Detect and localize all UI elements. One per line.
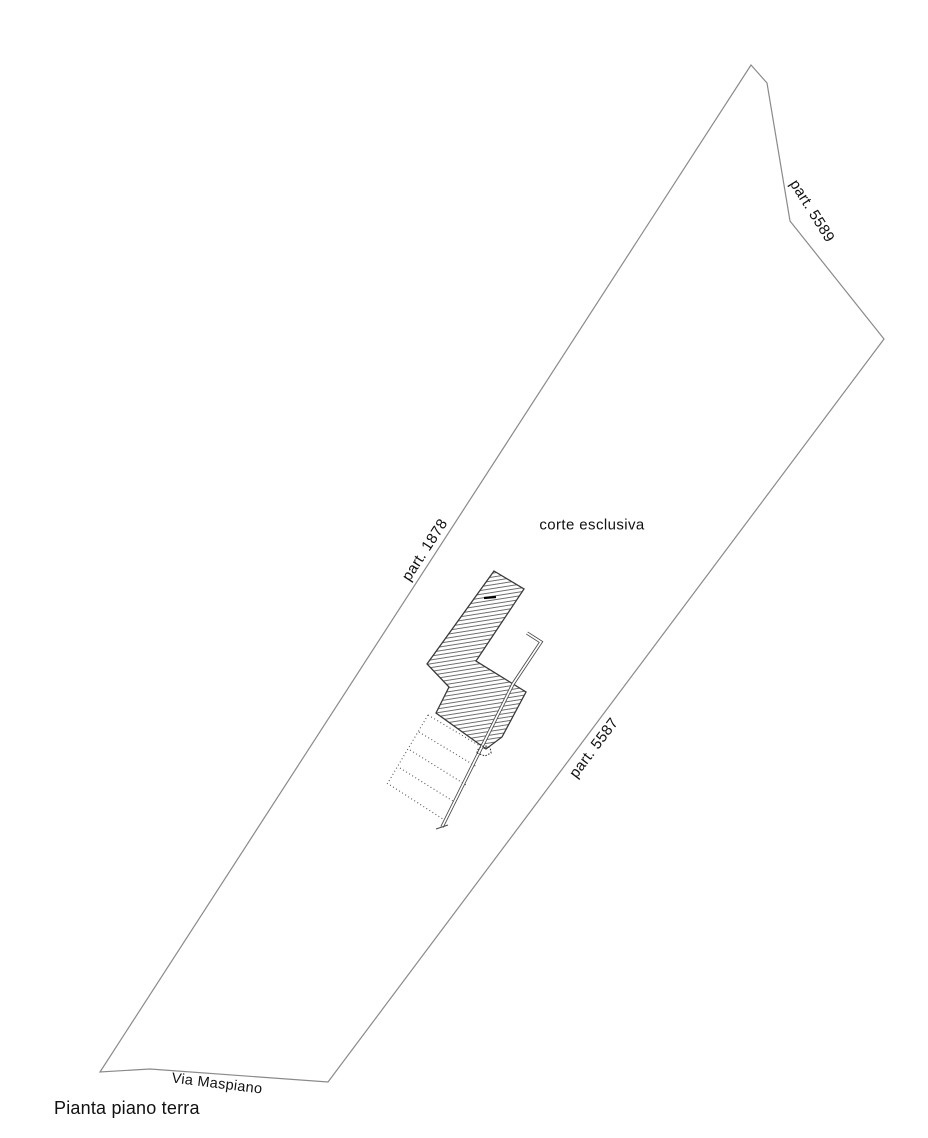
courtyard-label: corte esclusiva xyxy=(539,517,644,534)
plan-title: Pianta piano terra xyxy=(54,1098,200,1119)
site-plan-drawing: part. 5589 part. 1878 corte esclusiva pa… xyxy=(0,0,928,1138)
plan-geometry xyxy=(0,0,928,1138)
building-footprint xyxy=(427,571,526,749)
opening-mark xyxy=(484,597,496,598)
